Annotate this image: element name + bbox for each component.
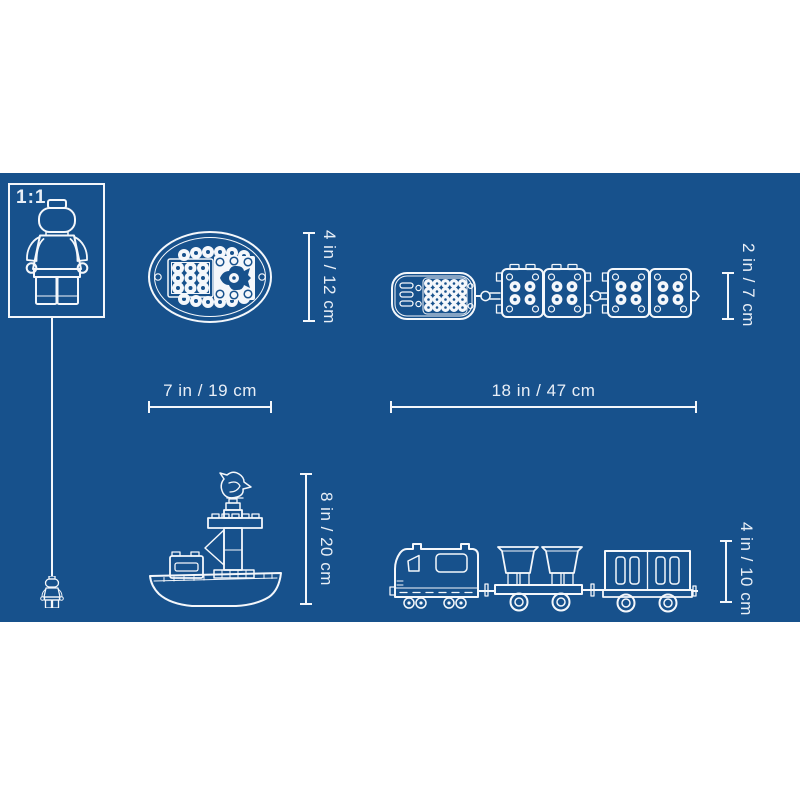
dim-boat-top-height: 4 in / 12 cm [303, 227, 347, 327]
dimension-label: 7 in / 19 cm [148, 381, 272, 401]
dimension-label: 18 in / 47 cm [390, 381, 697, 401]
boat-side-view-icon [148, 466, 283, 611]
product-dimensions-image: 1:1 [0, 0, 800, 800]
dimension-line [305, 473, 307, 605]
dimension-line [148, 406, 272, 408]
dim-train-top-width: 18 in / 47 cm [390, 381, 697, 408]
boat-top-view-icon [140, 228, 292, 328]
dimension-line [727, 272, 729, 320]
dim-boat-top-width: 7 in / 19 cm [148, 381, 272, 408]
dimension-label: 4 in / 12 cm [319, 227, 339, 327]
dim-boat-side-height: 8 in / 20 cm [300, 468, 344, 610]
dim-train-top-height: 2 in / 7 cm [722, 240, 766, 330]
dimension-line [308, 232, 310, 322]
scale-box: 1:1 [8, 183, 105, 318]
dimension-label: 4 in / 10 cm [736, 522, 756, 607]
minifigure-icon [24, 199, 90, 309]
dim-train-side-height: 4 in / 10 cm [720, 522, 764, 607]
train-top-view-icon [390, 258, 700, 328]
scale-leader-line [51, 318, 53, 576]
mini-minifigure-icon [40, 576, 64, 608]
dimension-line [390, 406, 697, 408]
train-side-view-icon [388, 538, 698, 613]
dimension-label: 8 in / 20 cm [316, 468, 336, 610]
dimension-line [725, 540, 727, 603]
dimension-label: 2 in / 7 cm [738, 240, 758, 330]
